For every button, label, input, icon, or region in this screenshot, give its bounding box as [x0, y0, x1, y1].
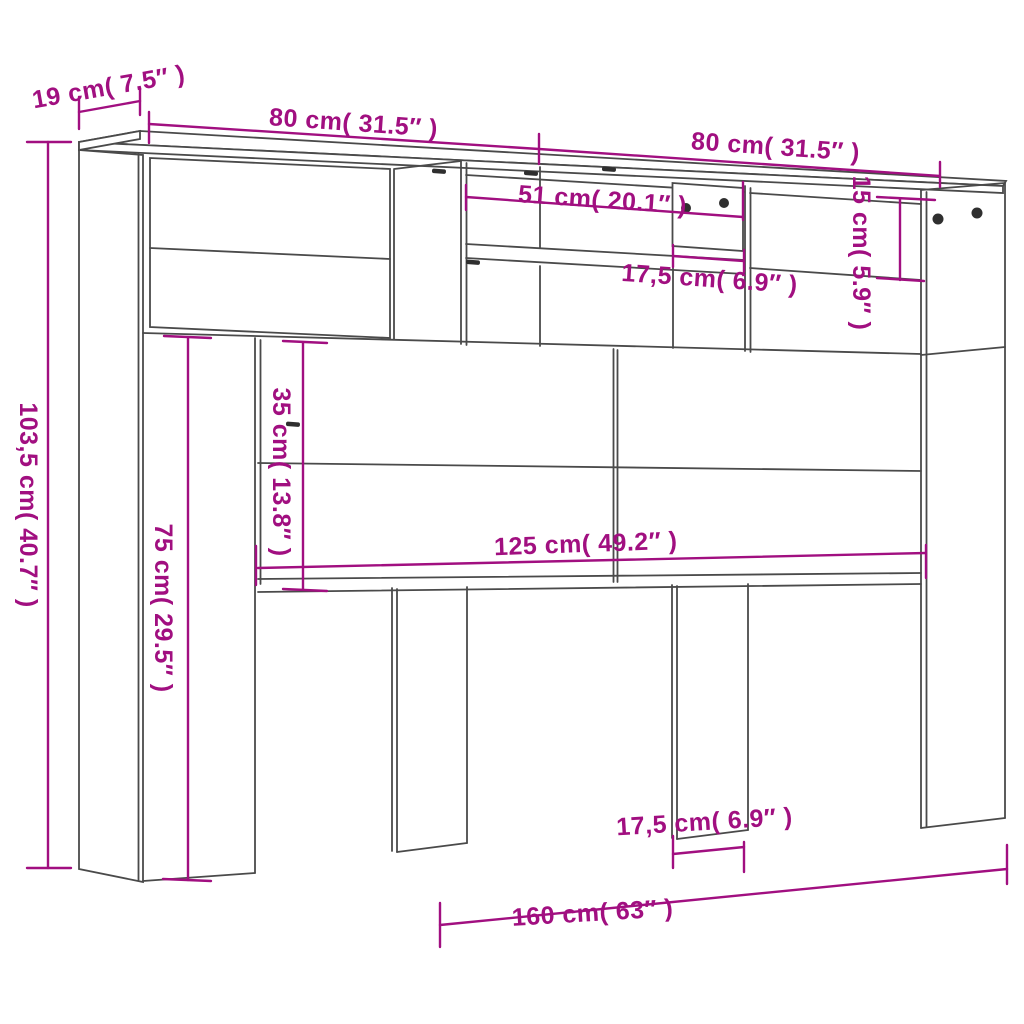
label-width-left: 80 cm( 31.5″ ): [268, 103, 439, 143]
left-side-panel: [79, 150, 143, 882]
label-leg-depth: 17,5 cm( 6.9″ ): [616, 803, 794, 842]
knob-dot: [972, 208, 983, 219]
knob-dot: [933, 214, 944, 225]
label-door-width: 17,5 cm( 6.9″ ): [621, 259, 799, 299]
dim-leg-depth: [673, 836, 744, 872]
dim-total-width: [440, 845, 1007, 947]
label-niche-width: 125 cm( 49.2″ ): [494, 527, 678, 561]
label-compartment-height: 15 cm( 5.9″ ): [847, 176, 875, 331]
open-niche: [143, 338, 921, 881]
furniture-dimension-diagram: 19 cm( 7.5″ ) 80 cm( 31.5″ ) 80 cm( 31.5…: [0, 0, 1024, 1024]
label-total-height: 103,5 cm( 40.7″ ): [14, 402, 42, 607]
label-niche-height: 35 cm( 13.8″ ): [267, 387, 295, 556]
diagram-page: 19 cm( 7.5″ ) 80 cm( 31.5″ ) 80 cm( 31.5…: [0, 0, 1024, 1024]
hinge-mark: [432, 169, 446, 174]
hinge-mark: [466, 260, 480, 265]
right-end-panel: [921, 183, 1005, 828]
label-total-width: 160 cm( 63″ ): [511, 894, 674, 932]
knob-dot: [719, 198, 729, 208]
label-leg-height: 75 cm( 29.5″ ): [149, 523, 177, 692]
